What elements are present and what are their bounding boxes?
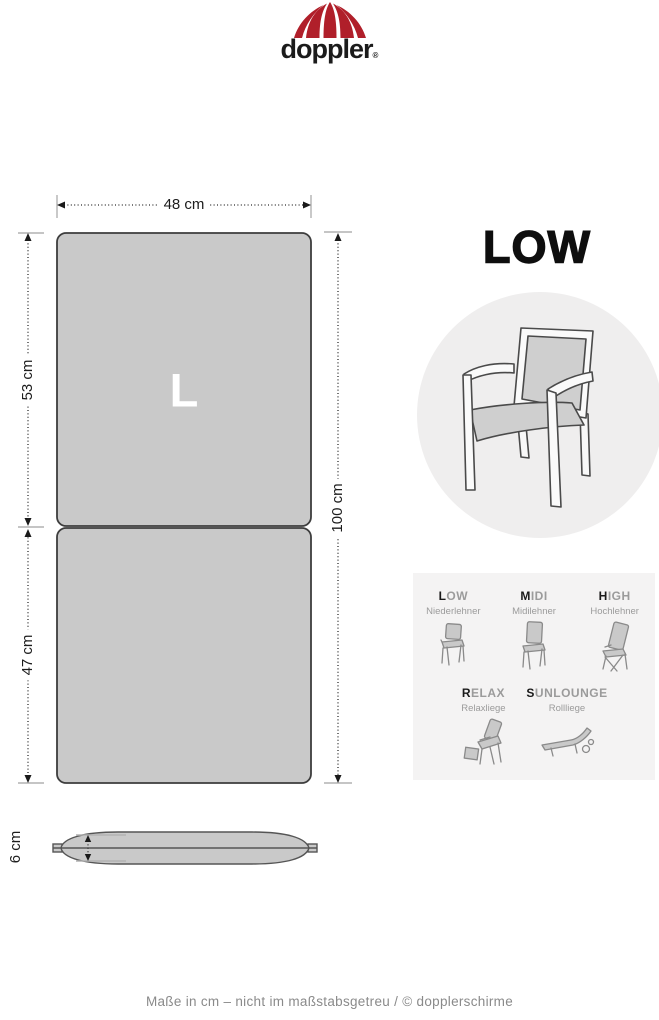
legend-relax-label: RELAX <box>460 686 506 700</box>
legend-relax-subtitle: Relaxliege <box>460 703 506 714</box>
width-dimension-label: 48 cm <box>159 196 210 214</box>
legend-item-high: HIGH Hochlehner <box>574 589 655 678</box>
legend-low-subtitle: Niederlehner <box>413 606 494 617</box>
legend-high-label: HIGH <box>574 589 655 603</box>
product-title: LOW <box>483 225 591 270</box>
thickness-dimension-label: 6 cm <box>7 826 25 869</box>
legend-sunlounge-subtitle: Rollliege <box>526 703 607 714</box>
legend-item-relax: RELAX Relaxliege <box>460 686 506 775</box>
legend-high-subtitle: Hochlehner <box>574 606 655 617</box>
page: doppler® <box>0 0 659 1020</box>
relax-chair-icon <box>460 718 506 775</box>
low-chair-icon <box>413 621 494 672</box>
high-chair-icon <box>574 621 655 678</box>
sunlounge-icon <box>526 718 607 767</box>
back-length-dimension-label: 53 cm <box>19 355 37 406</box>
cushion-size-letter: L <box>170 367 199 414</box>
legend-item-midi: MIDI Midilehner <box>494 589 575 678</box>
cushion-side-view <box>53 832 317 864</box>
legend-low-label: LOW <box>413 589 494 603</box>
legend-midi-subtitle: Midilehner <box>494 606 575 617</box>
legend-midi-label: MIDI <box>494 589 575 603</box>
legend-item-sunlounge: SUNLOUNGE Rollliege <box>526 686 607 775</box>
legend-item-low: LOW Niederlehner <box>413 589 494 678</box>
total-length-dimension-label: 100 cm <box>329 478 347 537</box>
legend-row-1: LOW Niederlehner <box>413 589 655 678</box>
backrest-type-legend: LOW Niederlehner <box>413 573 655 780</box>
footer-note: Maße in cm – nicht im maßstabsgetreu / ©… <box>0 994 659 1009</box>
seat-length-dimension-label: 47 cm <box>19 630 37 681</box>
cushion-seat-section <box>57 528 311 783</box>
legend-row-2: RELAX Relaxliege <box>413 686 655 775</box>
legend-sunlounge-label: SUNLOUNGE <box>526 686 607 700</box>
midi-chair-icon <box>494 621 575 676</box>
